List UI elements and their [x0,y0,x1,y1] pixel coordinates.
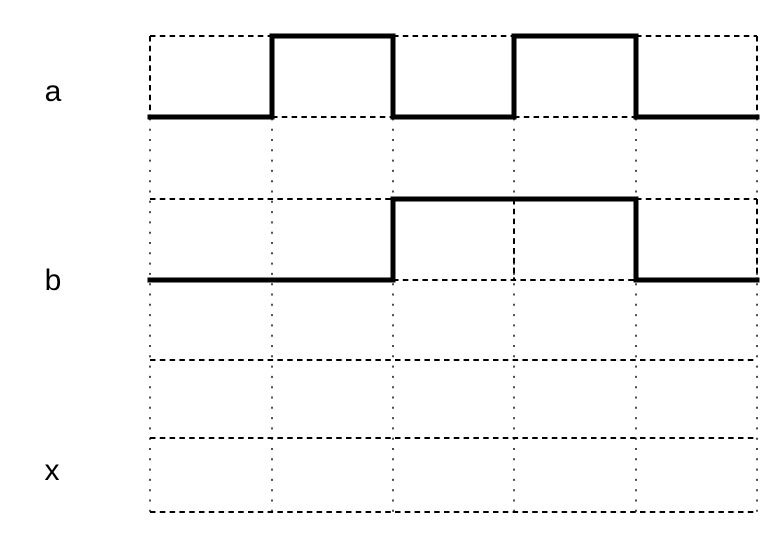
signal-label-a: a [45,77,62,107]
timing-diagram-canvas [0,0,782,548]
signal-label-x: x [45,456,60,486]
signal-label-b: b [45,266,62,296]
waveform-a [150,36,757,117]
timing-diagram: a b x [0,0,782,548]
waveform-b [150,199,757,280]
